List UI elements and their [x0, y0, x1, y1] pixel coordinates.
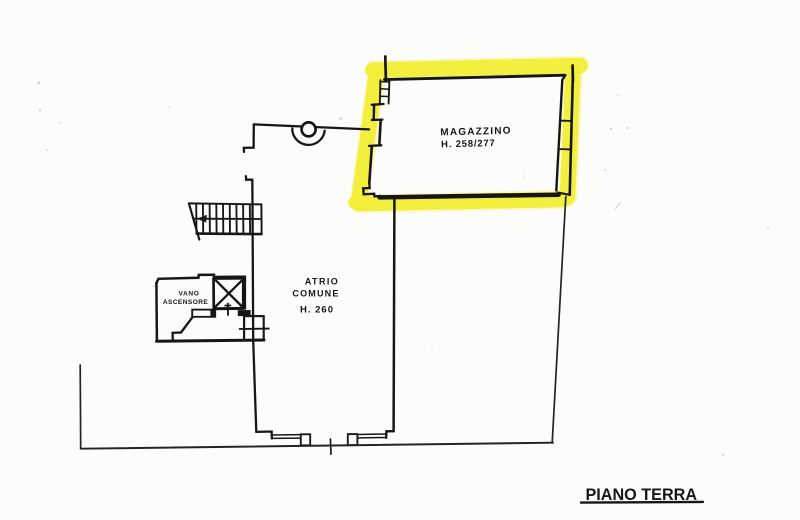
- svg-text:COMUNE: COMUNE: [292, 289, 339, 299]
- svg-text:ASCENSORE: ASCENSORE: [163, 299, 209, 306]
- svg-text:H. 258/277: H. 258/277: [441, 138, 496, 150]
- svg-text:MAGAZZINO: MAGAZZINO: [440, 126, 512, 139]
- svg-text:ATRIO: ATRIO: [305, 277, 339, 287]
- svg-text:H. 260: H. 260: [300, 305, 334, 316]
- svg-text:VANO: VANO: [179, 291, 200, 298]
